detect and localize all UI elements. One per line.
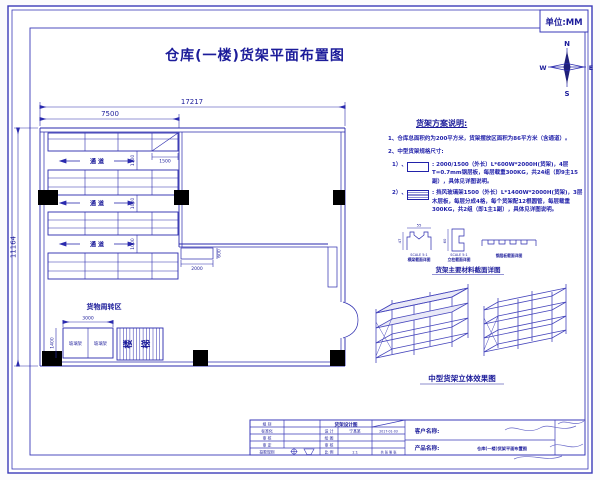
tb-left-row2: 标准化 bbox=[261, 429, 273, 434]
beam-dim-w: 55 bbox=[417, 223, 422, 228]
tb-customer-label: 客户名称: bbox=[414, 427, 440, 435]
sheet-borders bbox=[8, 6, 592, 473]
dim-aisle3: 1000 bbox=[130, 238, 136, 250]
tb-product-label: 产品名称: bbox=[415, 444, 440, 452]
unit-label: 单位:MM bbox=[545, 17, 582, 28]
aisle-label-3: 通 道 bbox=[90, 241, 104, 249]
sheet-linework: 单位:MM N S W E 仓库(一楼)货架平面布置图 bbox=[0, 0, 600, 480]
dim-left-zone: 7500 bbox=[101, 110, 119, 118]
compass-n: N bbox=[564, 40, 570, 48]
aisle-label-1: 通 道 bbox=[90, 158, 104, 166]
beam-dim-h: 47 bbox=[397, 238, 402, 243]
dim-aisle2: 1000 bbox=[130, 198, 136, 210]
panel-caption: 钢层板截面详图 bbox=[496, 253, 523, 258]
notes-line1: 1、仓库总面积约为200平方米，货架摆放区面积为86平方米（含通道）。 bbox=[388, 135, 586, 144]
tb-sheet-label: 共 张 第 张 bbox=[381, 449, 398, 454]
beam-caption: 横梁截面详图 bbox=[407, 257, 431, 262]
tb-design-label: 设 计 bbox=[325, 428, 334, 433]
dim-glass-depth: 1400 bbox=[50, 337, 56, 349]
col-dim-h: 60 bbox=[442, 238, 447, 243]
spec2-prefix: 2）、 bbox=[392, 189, 407, 198]
tb-left-row1: 组 别 bbox=[263, 422, 272, 427]
spec1-prefix: 1）、 bbox=[392, 161, 407, 170]
dim-aisle1: 1100 bbox=[130, 155, 136, 167]
stairs-label-2: 梯 bbox=[140, 339, 152, 348]
dim-overall-depth: 11164 bbox=[10, 235, 18, 258]
glass-rack-symbol-icon bbox=[407, 190, 429, 200]
turnover-area-label: 货物周转区 bbox=[86, 302, 122, 311]
dim-overall-width: 17217 bbox=[181, 98, 203, 106]
dim-glass-width: 3000 bbox=[82, 316, 94, 322]
tb-check-label: 审 核 bbox=[325, 442, 334, 447]
rack-symbol-icon bbox=[407, 162, 429, 172]
notes-line2: 2、中型货架规格尺寸: bbox=[388, 148, 586, 157]
sections-main-caption: 货架主要材料截面详图 bbox=[435, 265, 502, 274]
spec2-text: : 挡风玻璃架1500（外长）L*1400W*2000H(货架)，3层木层板，每… bbox=[432, 189, 586, 215]
col-caption: 立柱截面详图 bbox=[448, 257, 471, 262]
glass-rack-label-2: 玻璃架 bbox=[94, 340, 108, 347]
notes-spec-1: 1）、 : 2000/1500（外长）L*600W*2000H(货架)，4层T=… bbox=[392, 161, 586, 187]
aisle-label-2: 通 道 bbox=[90, 200, 104, 208]
tb-center-header: 货架设计图 bbox=[335, 421, 358, 428]
drawing-title: 仓库(一楼)货架平面布置图 bbox=[164, 47, 345, 64]
compass-s: S bbox=[564, 90, 569, 98]
tb-product-value: 仓库(一楼)货架平面布置图 bbox=[477, 445, 527, 452]
tb-left-row5: 投影规则 bbox=[259, 450, 274, 455]
dim-inner-box-width: 2000 bbox=[191, 266, 203, 272]
unit-box: 单位:MM bbox=[540, 10, 588, 32]
dim-inner-box-depth: 600 bbox=[217, 249, 223, 258]
tb-designer: 宁某某 bbox=[349, 428, 361, 433]
drawing-sheet: { "sheet": { "unit_label": "单位:MM", "tit… bbox=[0, 0, 600, 480]
glass-rack-label-1: 玻璃架 bbox=[69, 340, 83, 347]
notes-title: 货架方案说明: bbox=[416, 118, 586, 129]
compass-e: E bbox=[589, 64, 593, 72]
notes-spec-2: 2）、 : 挡风玻璃架1500（外长）L*1400W*2000H(货架)，3层木… bbox=[392, 189, 586, 215]
spec1-text: : 2000/1500（外长）L*600W*2000H(货架)，4层T=0.7m… bbox=[432, 161, 586, 187]
tb-scale-value: 1:1 bbox=[352, 449, 359, 454]
compass-w: W bbox=[539, 64, 546, 72]
rack-plan-notes: 货架方案说明: 1、仓库总面积约为200平方米，货架摆放区面积为86平方米（含通… bbox=[388, 118, 586, 215]
dim-corner-cell: 1500 bbox=[159, 159, 171, 165]
tb-draw-label: 绘 图 bbox=[325, 435, 334, 440]
iso-caption: 中型货架立体效果图 bbox=[428, 373, 496, 383]
tb-date: 2017-01-03 bbox=[379, 429, 398, 433]
tb-left-row3: 审 核 bbox=[263, 436, 272, 441]
stairs-label-1: 楼 bbox=[122, 339, 134, 348]
tb-scale-label: 比 例 bbox=[325, 449, 334, 454]
tb-left-row4: 审 定 bbox=[263, 443, 272, 448]
